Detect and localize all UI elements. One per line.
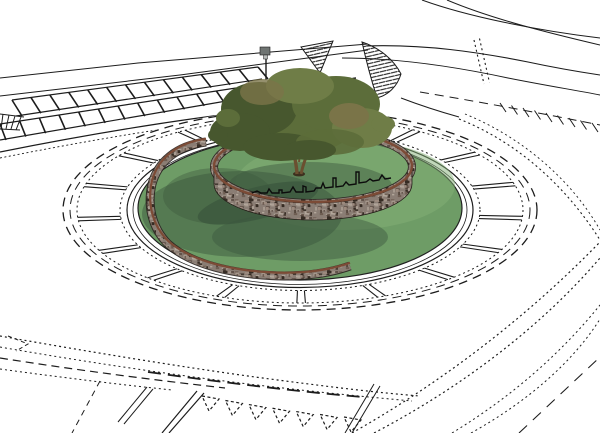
render-viewport [0,0,600,433]
splitter-island-small [301,41,333,73]
yield-triangles [202,396,361,432]
sign-panel [260,47,270,55]
trunk-base [293,172,305,177]
gore-hatch-ticks [500,103,598,132]
road-bottom-left [0,336,420,433]
sign-panel-small [264,55,268,59]
roundabout-3d-render [0,0,600,433]
tree-canopy [208,68,395,161]
